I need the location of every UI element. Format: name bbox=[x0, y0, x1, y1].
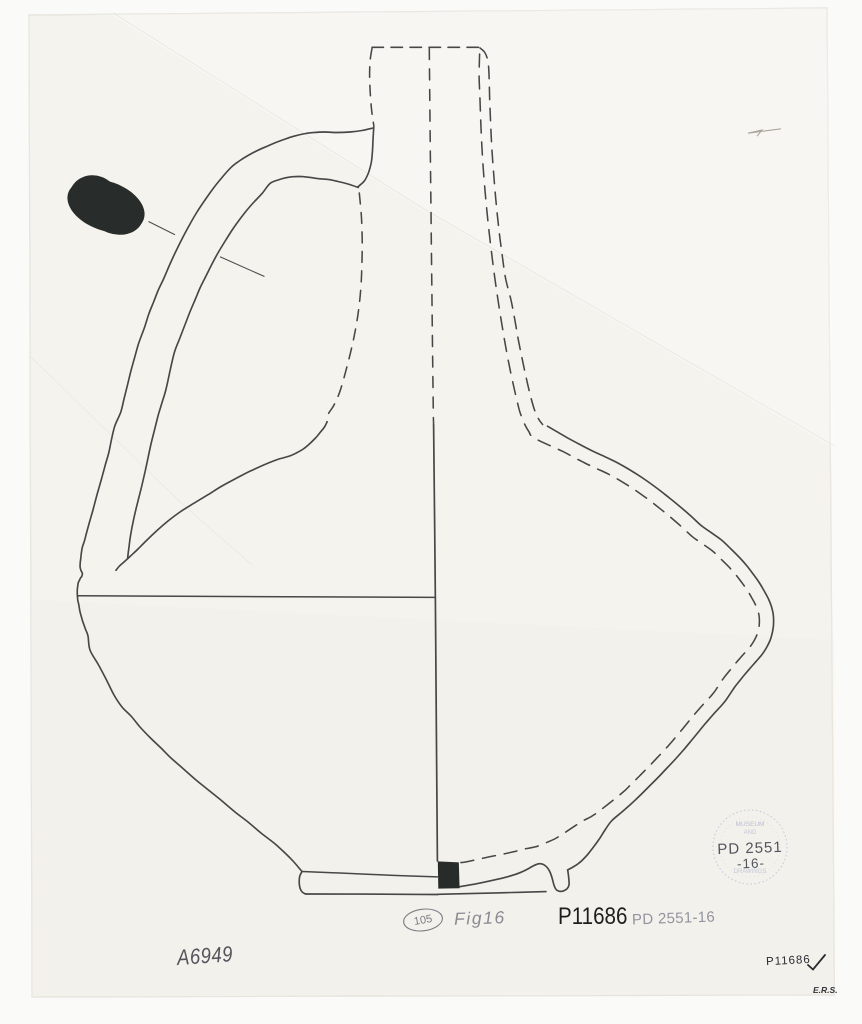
svg-text:MUSEUM: MUSEUM bbox=[736, 821, 765, 828]
svg-text:AND: AND bbox=[744, 830, 757, 836]
svg-text:105: 105 bbox=[413, 913, 433, 928]
